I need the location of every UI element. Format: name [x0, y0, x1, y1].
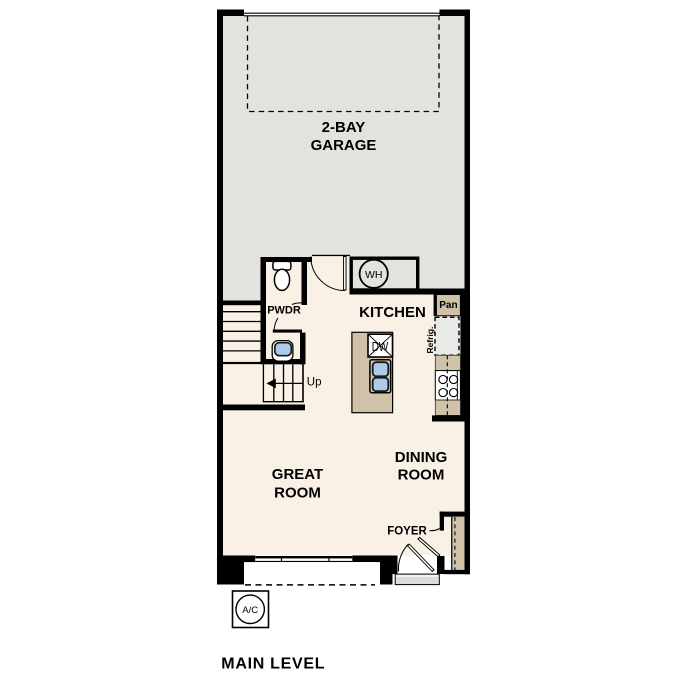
svg-text:DINING: DINING — [395, 449, 448, 466]
svg-text:DW: DW — [372, 339, 389, 354]
svg-text:ROOM: ROOM — [274, 485, 321, 502]
svg-text:PWDR: PWDR — [267, 305, 301, 317]
svg-text:GREAT: GREAT — [272, 466, 323, 483]
svg-text:Pan: Pan — [439, 300, 457, 311]
svg-text:ROOM: ROOM — [398, 467, 445, 484]
svg-text:Up: Up — [307, 376, 322, 388]
svg-text:Refrig.: Refrig. — [425, 327, 435, 354]
svg-text:2-BAY: 2-BAY — [322, 119, 366, 136]
svg-text:GARAGE: GARAGE — [311, 137, 377, 154]
svg-text:WH: WH — [365, 269, 383, 281]
svg-text:FOYER: FOYER — [387, 526, 427, 538]
svg-text:MAIN LEVEL: MAIN LEVEL — [221, 656, 325, 673]
svg-text:A/C: A/C — [242, 605, 258, 616]
svg-text:KITCHEN: KITCHEN — [359, 304, 426, 321]
